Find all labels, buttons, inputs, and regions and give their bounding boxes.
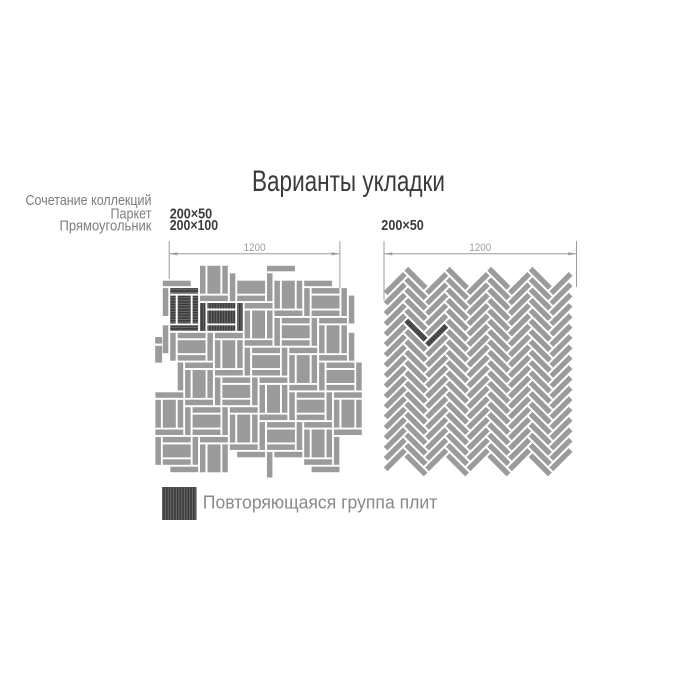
svg-text:200×50: 200×50 (381, 218, 424, 234)
svg-text:Прямоугольник: Прямоугольник (60, 218, 153, 234)
svg-text:Варианты укладки: Варианты укладки (252, 165, 445, 198)
svg-text:200×100: 200×100 (170, 218, 219, 234)
svg-text:Повторяющаяся группа плит: Повторяющаяся группа плит (203, 492, 438, 513)
svg-text:1200: 1200 (244, 242, 266, 254)
svg-text:1200: 1200 (469, 242, 491, 254)
